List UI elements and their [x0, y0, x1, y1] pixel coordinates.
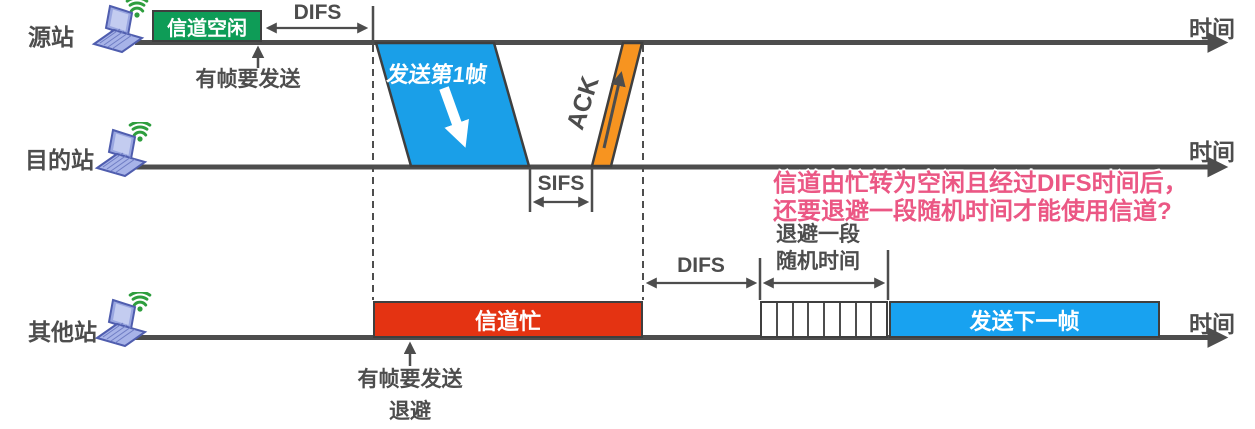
- send-next-frame-box: 发送下一帧: [889, 301, 1160, 338]
- send-next-frame-label: 发送下一帧: [969, 304, 1079, 336]
- backoff-slot: [809, 303, 825, 336]
- difs-label-top: DIFS: [267, 1, 368, 25]
- other-time-label: 时间: [1183, 305, 1235, 339]
- ack-parallelogram: [592, 43, 642, 166]
- channel-busy-label: 信道忙: [475, 304, 541, 336]
- channel-idle-box: 信道空闲: [152, 10, 262, 42]
- backoff-slot: [825, 303, 841, 336]
- source-station-label: 源站: [28, 18, 74, 52]
- frame-arrives-label-bottom: 有帧要发送: [345, 363, 475, 393]
- destination-laptop-icon: [93, 122, 163, 180]
- backoff-slot: [857, 303, 873, 336]
- annotation-line1: 信道由忙转为空闲且经过DIFS时间后，: [773, 170, 1188, 198]
- backoff-slot: [778, 303, 794, 336]
- channel-idle-label: 信道空闲: [167, 12, 247, 41]
- channel-busy-box: 信道忙: [373, 301, 643, 338]
- destination-station-label: 目的站: [25, 141, 94, 175]
- backoff-duration-line2: 随机时间: [776, 248, 860, 275]
- backoff-duration-line1: 退避一段: [776, 221, 860, 248]
- other-laptop-icon: [93, 292, 163, 350]
- backoff-slot: [762, 303, 778, 336]
- backoff-slot: [872, 303, 886, 336]
- backoff-slot: [794, 303, 810, 336]
- destination-time-label: 时间: [1183, 133, 1235, 167]
- csma-ca-timing-diagram: 信道空闲 信道忙 发送下一帧: [0, 0, 1255, 429]
- backoff-label: 退避: [345, 395, 475, 425]
- backoff-slots-box: [760, 301, 888, 338]
- send-first-frame-label: 发送第1帧: [385, 57, 489, 89]
- frame-arrives-label-top: 有帧要发送: [183, 63, 313, 93]
- other-station-label: 其他站: [28, 313, 97, 347]
- backoff-duration-label: 退避一段 随机时间: [776, 221, 860, 275]
- backoff-slot: [841, 303, 857, 336]
- source-time-label: 时间: [1183, 10, 1235, 44]
- difs-label-bottom: DIFS: [651, 254, 751, 278]
- source-laptop-icon: [90, 0, 160, 56]
- sifs-label: SIFS: [531, 172, 591, 196]
- annotation-note: 信道由忙转为空闲且经过DIFS时间后， 还要退避一段随机时间才能使用信道?: [773, 170, 1188, 226]
